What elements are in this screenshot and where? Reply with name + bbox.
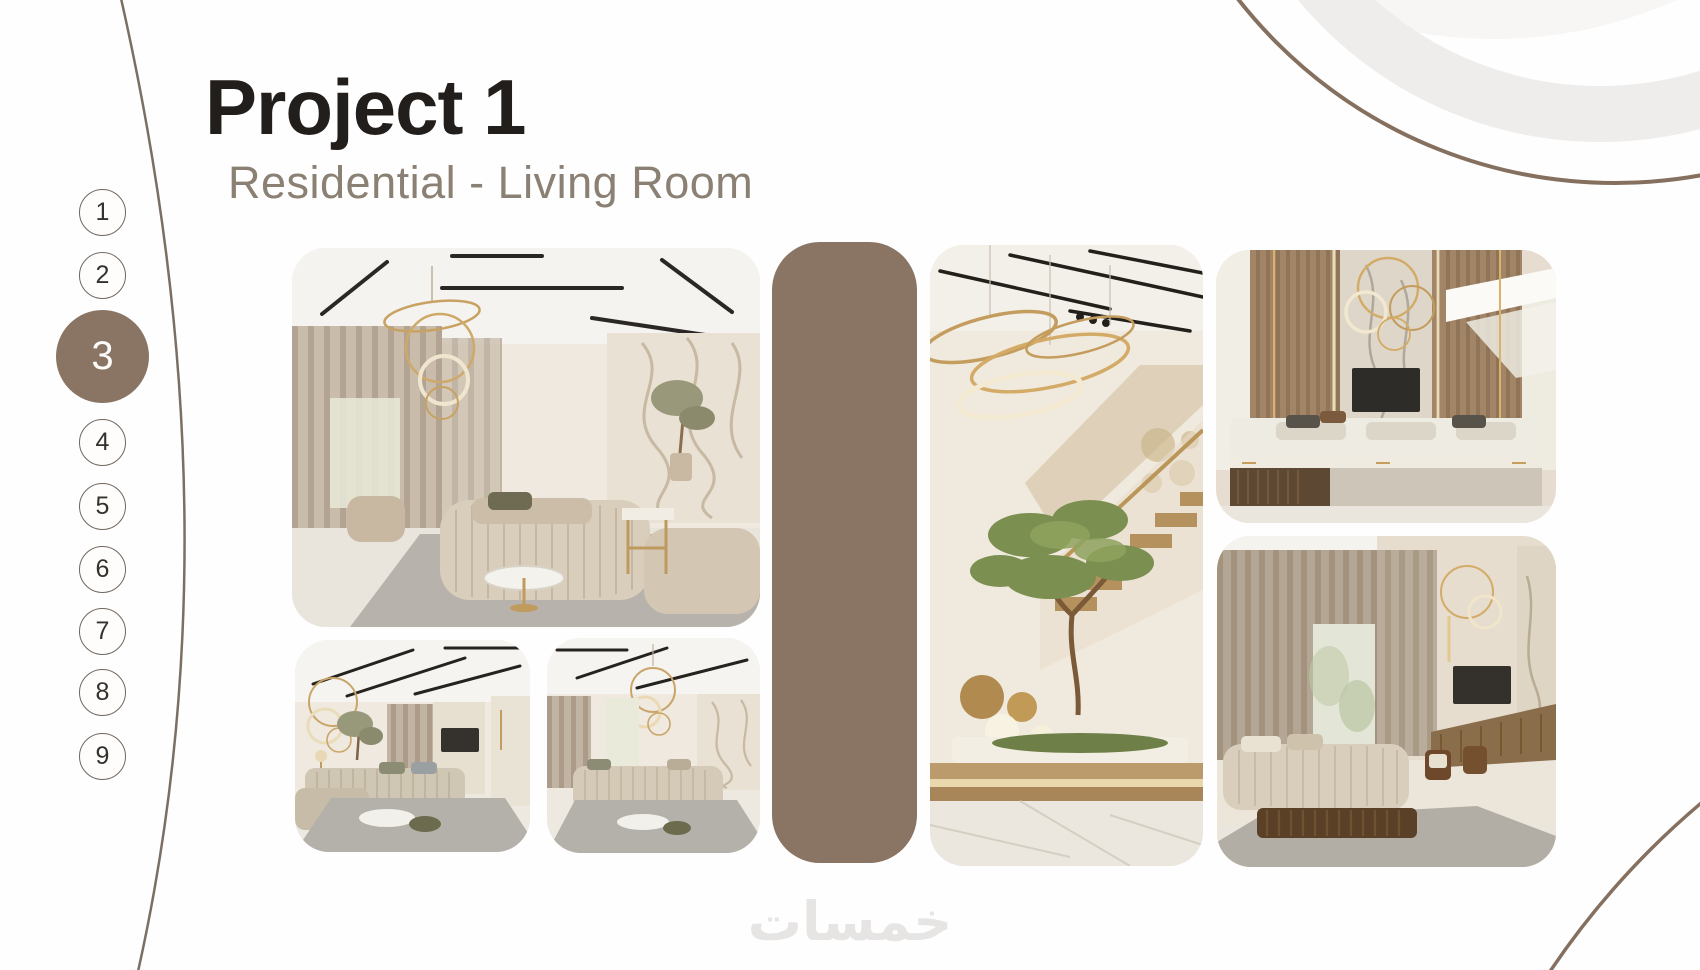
page-title: Project 1 [205,62,525,153]
photo-double-height-curtain-wall [1217,536,1556,867]
nav-dot-9[interactable]: 9 [79,733,126,780]
left-curve-line [120,0,185,970]
nav-dot-1[interactable]: 1 [79,189,126,236]
nav-dot-2[interactable]: 2 [79,252,126,299]
nav-dot-7[interactable]: 7 [79,608,126,655]
nav-dot-4[interactable]: 4 [79,419,126,466]
nav-dot-3-active[interactable]: 3 [56,310,149,403]
khamsat-watermark: خمسات [748,890,953,953]
photo-living-room-sofa-set [295,640,530,852]
nav-dot-5[interactable]: 5 [79,483,126,530]
living-room-curved-sofa-illustration [292,248,760,627]
staircase-atrium-illustration [930,245,1203,866]
living-room-sofa-set-illustration [295,640,530,852]
slide: Project 1 Residential - Living Room 1 2 … [0,0,1700,970]
living-room-wavy-wall-illustration [547,638,760,853]
photo-living-room-wavy-wall [547,638,760,853]
photo-staircase-atrium [930,245,1203,866]
accent-block [772,242,917,863]
photo-living-room-curved-sofa [292,248,760,627]
nav-dot-6[interactable]: 6 [79,546,126,593]
page-subtitle: Residential - Living Room [228,157,753,209]
double-height-curtain-wall-illustration [1217,536,1556,867]
photo-double-height-tv-wall [1216,250,1556,523]
corner-gray-band-arc [1236,0,1700,114]
nav-dot-8[interactable]: 8 [79,669,126,716]
corner-faint-band-arc [1068,0,1700,18]
corner-brown-arc [1137,0,1700,183]
double-height-tv-wall-illustration [1216,250,1556,523]
